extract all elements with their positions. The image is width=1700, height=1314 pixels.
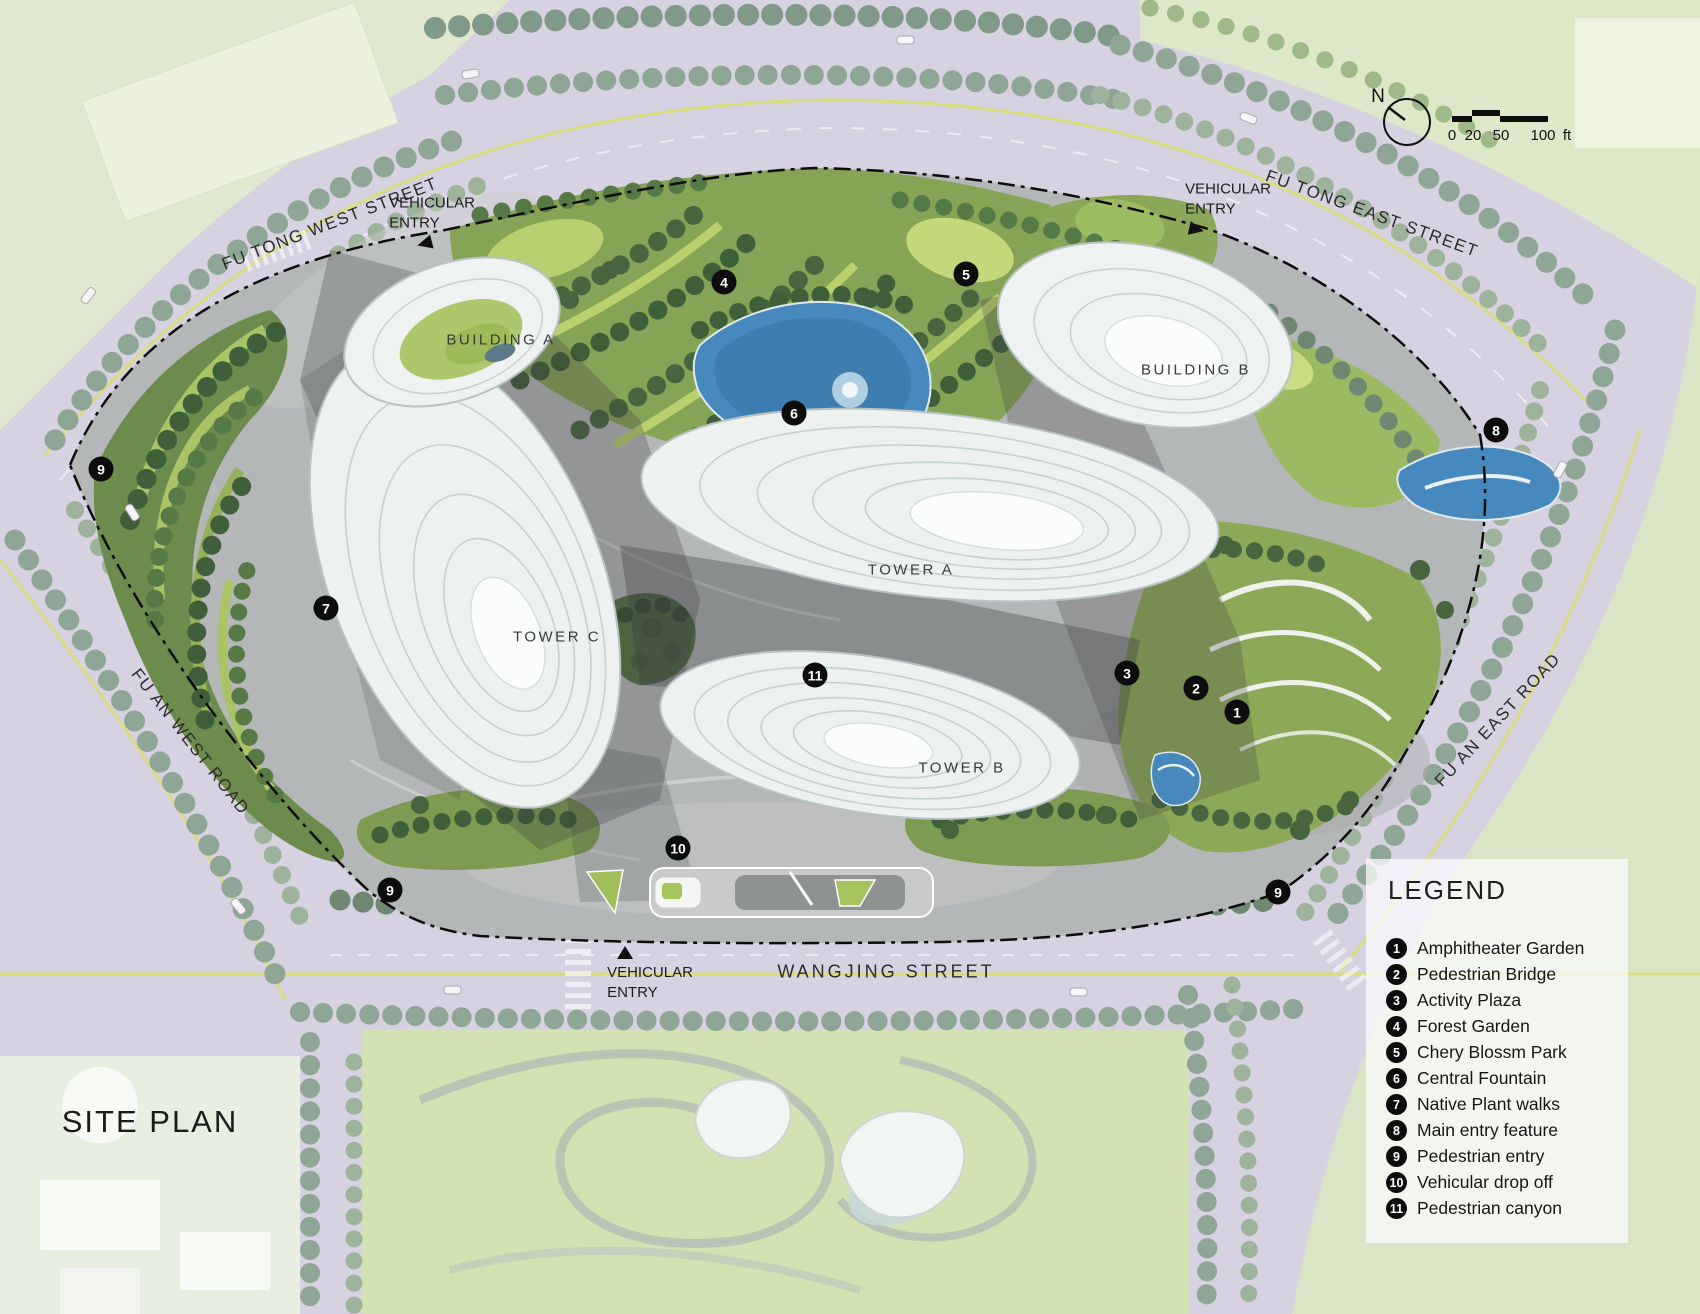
legend-item-label: Main entry feature	[1417, 1120, 1558, 1141]
legend-item-number-badge: 4	[1386, 1016, 1407, 1037]
page-title: SITE PLAN	[62, 1104, 239, 1140]
entry-text-line2: ENTRY	[1185, 200, 1236, 217]
entry-text-line1: VEHICULAR	[607, 964, 693, 981]
legend-item-label: Forest Garden	[1417, 1016, 1530, 1037]
map-marker-4: 4	[712, 270, 737, 295]
legend-item: 10Vehicular drop off	[1386, 1172, 1628, 1193]
legend-item-label: Central Fountain	[1417, 1068, 1546, 1089]
legend-item-number-badge: 8	[1386, 1120, 1407, 1141]
legend-item: 6Central Fountain	[1386, 1068, 1628, 1089]
map-marker-8: 8	[1484, 418, 1509, 443]
legend-item-number-badge: 6	[1386, 1068, 1407, 1089]
legend-item-label: Native Plant walks	[1417, 1094, 1560, 1115]
scale-tick-0: 0	[1448, 127, 1456, 144]
site-plan-canvas: SITE PLAN FU TONG WEST STREET FU TONG EA…	[0, 0, 1700, 1314]
label-tower-a: TOWER A	[868, 562, 954, 579]
map-marker-1: 1	[1225, 700, 1250, 725]
map-marker-9c: 9	[1266, 880, 1291, 905]
map-marker-2: 2	[1184, 676, 1209, 701]
map-marker-10: 10	[666, 836, 691, 861]
legend-item-label: Pedestrian entry	[1417, 1146, 1544, 1167]
legend-panel: LEGEND 1Amphitheater Garden 2Pedestrian …	[1366, 859, 1628, 1243]
entry-arrow-icon	[416, 235, 434, 252]
legend-item-number-badge: 2	[1386, 964, 1407, 985]
label-building-b: BUILDING B	[1141, 362, 1251, 379]
entry-text-line2: ENTRY	[607, 984, 658, 1001]
legend-item: 2Pedestrian Bridge	[1386, 964, 1628, 985]
legend-item-number-badge: 7	[1386, 1094, 1407, 1115]
entry-text-line1: VEHICULAR	[389, 195, 475, 212]
legend-item-label: Vehicular drop off	[1417, 1172, 1553, 1193]
scale-bar-segment	[1472, 110, 1500, 116]
legend-item-label: Pedestrian Bridge	[1417, 964, 1556, 985]
legend-item: 1Amphitheater Garden	[1386, 938, 1628, 959]
legend-item: 9Pedestrian entry	[1386, 1146, 1628, 1167]
scale-bar-segment	[1452, 116, 1472, 122]
main-entry-pond	[1397, 447, 1560, 520]
scale-unit: ft	[1563, 127, 1571, 144]
legend-item: 3Activity Plaza	[1386, 990, 1628, 1011]
compass-icon	[1383, 98, 1431, 146]
map-marker-9a: 9	[89, 457, 114, 482]
legend-item-label: Amphitheater Garden	[1417, 938, 1584, 959]
vehicular-entry-label-south: VEHICULAR ENTRY	[607, 946, 693, 1002]
scale-tick-50: 50	[1493, 127, 1510, 144]
legend-item-number-badge: 10	[1386, 1172, 1407, 1193]
legend-item: 5Chery Blossm Park	[1386, 1042, 1628, 1063]
entry-arrow-icon	[617, 946, 633, 959]
legend-item: 7Native Plant walks	[1386, 1094, 1628, 1115]
north-label: N	[1371, 86, 1385, 108]
label-tower-b: TOWER B	[918, 760, 1005, 777]
entry-text-line2: ENTRY	[389, 214, 440, 231]
vehicular-entry-label-northwest: VEHICULAR ENTRY	[389, 194, 475, 251]
label-tower-c: TOWER C	[513, 629, 601, 646]
map-marker-7: 7	[314, 596, 339, 621]
entry-text-line1: VEHICULAR	[1185, 181, 1271, 198]
legend-item-label: Activity Plaza	[1417, 990, 1521, 1011]
scale-tick-100: 100	[1530, 127, 1555, 144]
legend-title: LEGEND	[1388, 875, 1628, 906]
scale-tick-20: 20	[1465, 127, 1482, 144]
legend-item-number-badge: 3	[1386, 990, 1407, 1011]
map-marker-3: 3	[1115, 661, 1140, 686]
scale-bar-segment	[1500, 116, 1548, 122]
legend-item-number-badge: 11	[1386, 1198, 1407, 1219]
map-marker-11: 11	[803, 663, 828, 688]
legend-item: 8Main entry feature	[1386, 1120, 1628, 1141]
legend-item-number-badge: 5	[1386, 1042, 1407, 1063]
legend-item: 11Pedestrian canyon	[1386, 1198, 1628, 1219]
vehicular-entry-label-northeast: VEHICULAR ENTRY	[1185, 180, 1271, 237]
legend-item-number-badge: 1	[1386, 938, 1407, 959]
legend-item-label: Chery Blossm Park	[1417, 1042, 1567, 1063]
street-label-wangjing: WANGJING STREET	[777, 962, 994, 983]
map-marker-9b: 9	[378, 878, 403, 903]
map-marker-6: 6	[782, 401, 807, 426]
legend-item-label: Pedestrian canyon	[1417, 1198, 1562, 1219]
legend-item: 4Forest Garden	[1386, 1016, 1628, 1037]
label-building-a: BUILDING A	[446, 332, 555, 349]
map-marker-5: 5	[954, 262, 979, 287]
legend-item-number-badge: 9	[1386, 1146, 1407, 1167]
entry-arrow-icon	[1188, 221, 1206, 238]
